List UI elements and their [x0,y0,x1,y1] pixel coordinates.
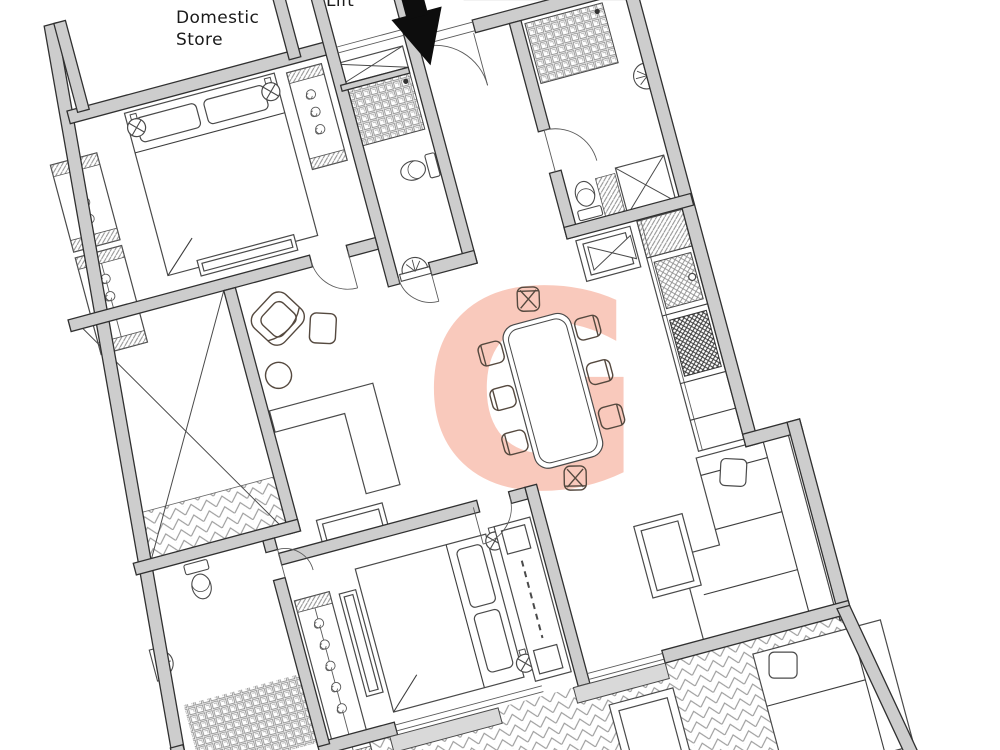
armchair [247,287,309,349]
floor-plan-svg: G [0,0,1000,750]
coffee-table [634,514,701,598]
domestic-store-label-line2: Store [176,29,259,51]
toilet-icon [398,152,440,185]
round-stool [263,359,295,391]
lift-label: Lift [326,0,354,12]
ottoman [309,313,337,344]
bathroom3-floor-tiles [184,674,317,750]
domestic-store-label-line1: Domestic [176,7,259,29]
wall-bed1-south-stub [346,238,378,257]
door-swing-bath2 [544,119,597,172]
toilet-icon [183,559,216,601]
floor-plan-page: G [0,0,1000,750]
domestic-store-label: Domestic Store [176,7,259,51]
wall-store-east [264,0,300,60]
wall-bath3-east-a [263,538,278,553]
door-swing-bed1 [311,251,358,298]
